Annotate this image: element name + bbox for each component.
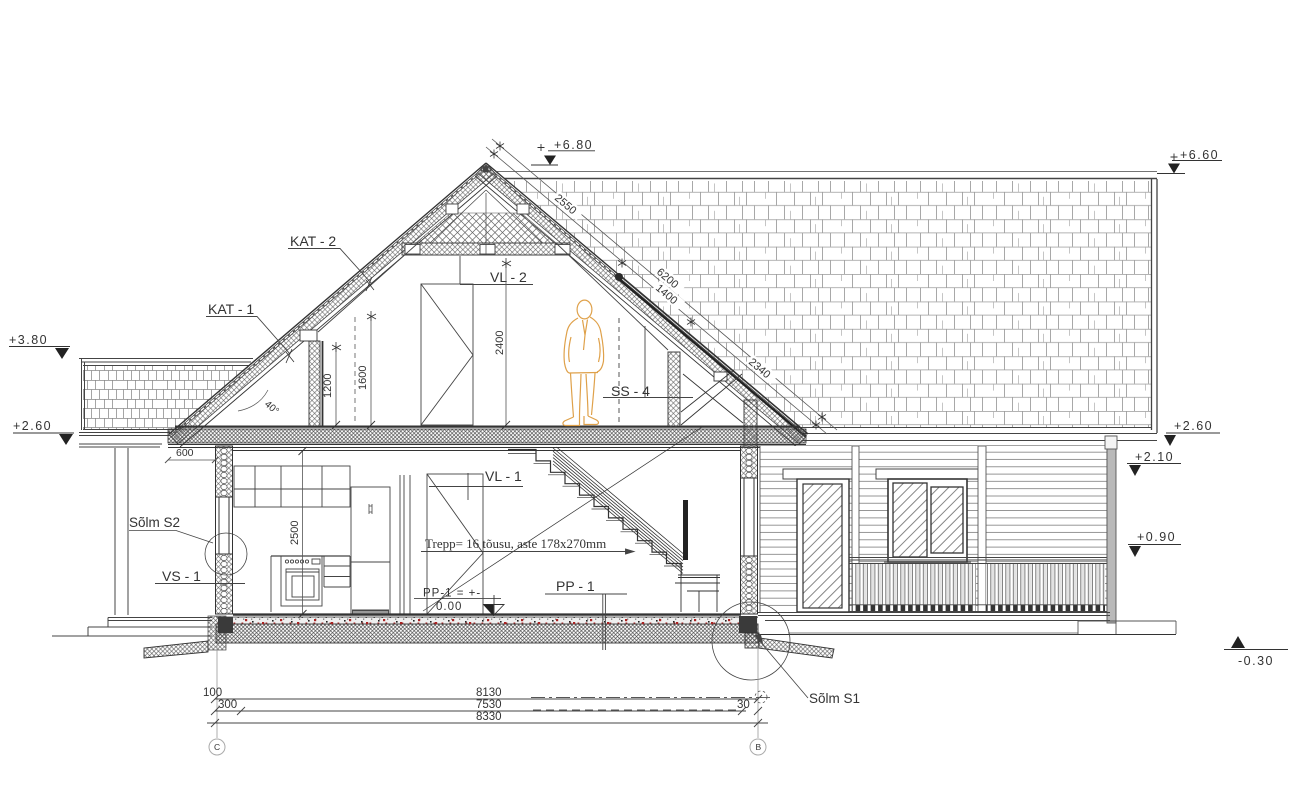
svg-text:100: 100 <box>203 687 222 699</box>
svg-text:VL - 2: VL - 2 <box>490 269 527 285</box>
svg-text:C: C <box>214 742 220 752</box>
svg-text:VS - 1: VS - 1 <box>162 568 201 584</box>
svg-text:30: 30 <box>737 699 750 711</box>
svg-text:PP-1 = +-: PP-1 = +- <box>423 588 481 600</box>
svg-text:1600: 1600 <box>357 366 369 390</box>
svg-text:1200: 1200 <box>322 374 334 398</box>
svg-text:Sõlm S1: Sõlm S1 <box>809 691 860 706</box>
svg-text:+2.10: +2.10 <box>1135 450 1174 464</box>
svg-text:PP - 1: PP - 1 <box>556 578 595 594</box>
svg-text:+2.60: +2.60 <box>1174 419 1213 433</box>
svg-text:+2.60: +2.60 <box>13 419 52 433</box>
svg-text:+0.90: +0.90 <box>1137 530 1176 544</box>
svg-text:-0.30: -0.30 <box>1238 654 1274 668</box>
svg-text:KAT - 1: KAT - 1 <box>208 301 254 317</box>
svg-text:0.00: 0.00 <box>436 601 462 613</box>
svg-text:2500: 2500 <box>289 521 301 545</box>
svg-text:+6.80: +6.80 <box>554 138 593 152</box>
svg-text:+6.60: +6.60 <box>1180 148 1219 162</box>
svg-text:VL - 1: VL - 1 <box>485 468 522 484</box>
svg-text:KAT - 2: KAT - 2 <box>290 233 336 249</box>
svg-text:8130: 8130 <box>476 687 502 699</box>
svg-text:B: B <box>756 742 762 752</box>
svg-text:300: 300 <box>218 699 237 711</box>
svg-text:+3.80: +3.80 <box>9 333 48 347</box>
svg-text:8330: 8330 <box>476 711 502 723</box>
svg-text:Trepp= 16 tõusu, aste 178x270m: Trepp= 16 tõusu, aste 178x270mm <box>425 536 606 551</box>
svg-text:600: 600 <box>176 447 194 459</box>
svg-text:7530: 7530 <box>476 699 502 711</box>
svg-text:Sõlm S2: Sõlm S2 <box>129 515 180 530</box>
svg-text:2400: 2400 <box>494 331 506 355</box>
svg-text:SS - 4: SS - 4 <box>611 383 650 399</box>
